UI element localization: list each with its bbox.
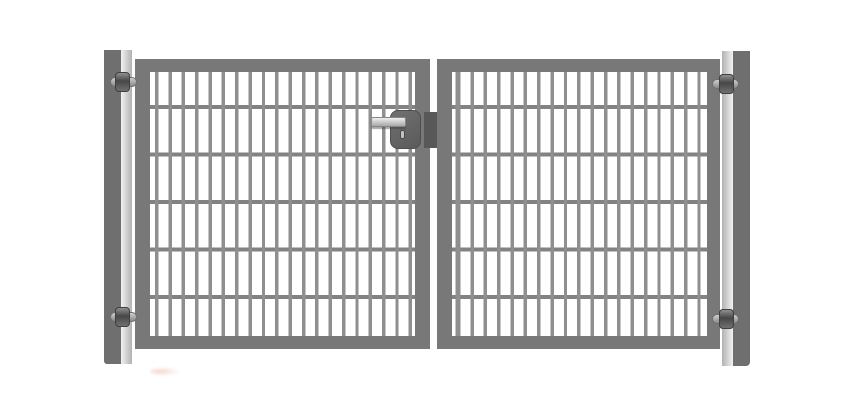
right-gate-wing (437, 59, 720, 349)
hinge-bottom-left (110, 307, 137, 327)
hinge-nut (719, 74, 734, 94)
left-gate-wing (135, 59, 430, 349)
hinge-top-right (712, 74, 739, 94)
watermark-smudge (150, 367, 180, 376)
hinge-top-left (110, 72, 137, 92)
lock-latch (424, 112, 437, 148)
hinge-nut (115, 307, 130, 327)
gate-product-image (0, 0, 855, 402)
lock-body (390, 110, 421, 149)
right-wing-mesh (452, 72, 707, 336)
door-handle (371, 117, 406, 127)
keyhole (400, 130, 405, 139)
hinge-nut (719, 309, 734, 329)
hinge-bottom-right (712, 309, 739, 329)
hinge-nut (115, 72, 130, 92)
left-wing-mesh (150, 72, 415, 336)
